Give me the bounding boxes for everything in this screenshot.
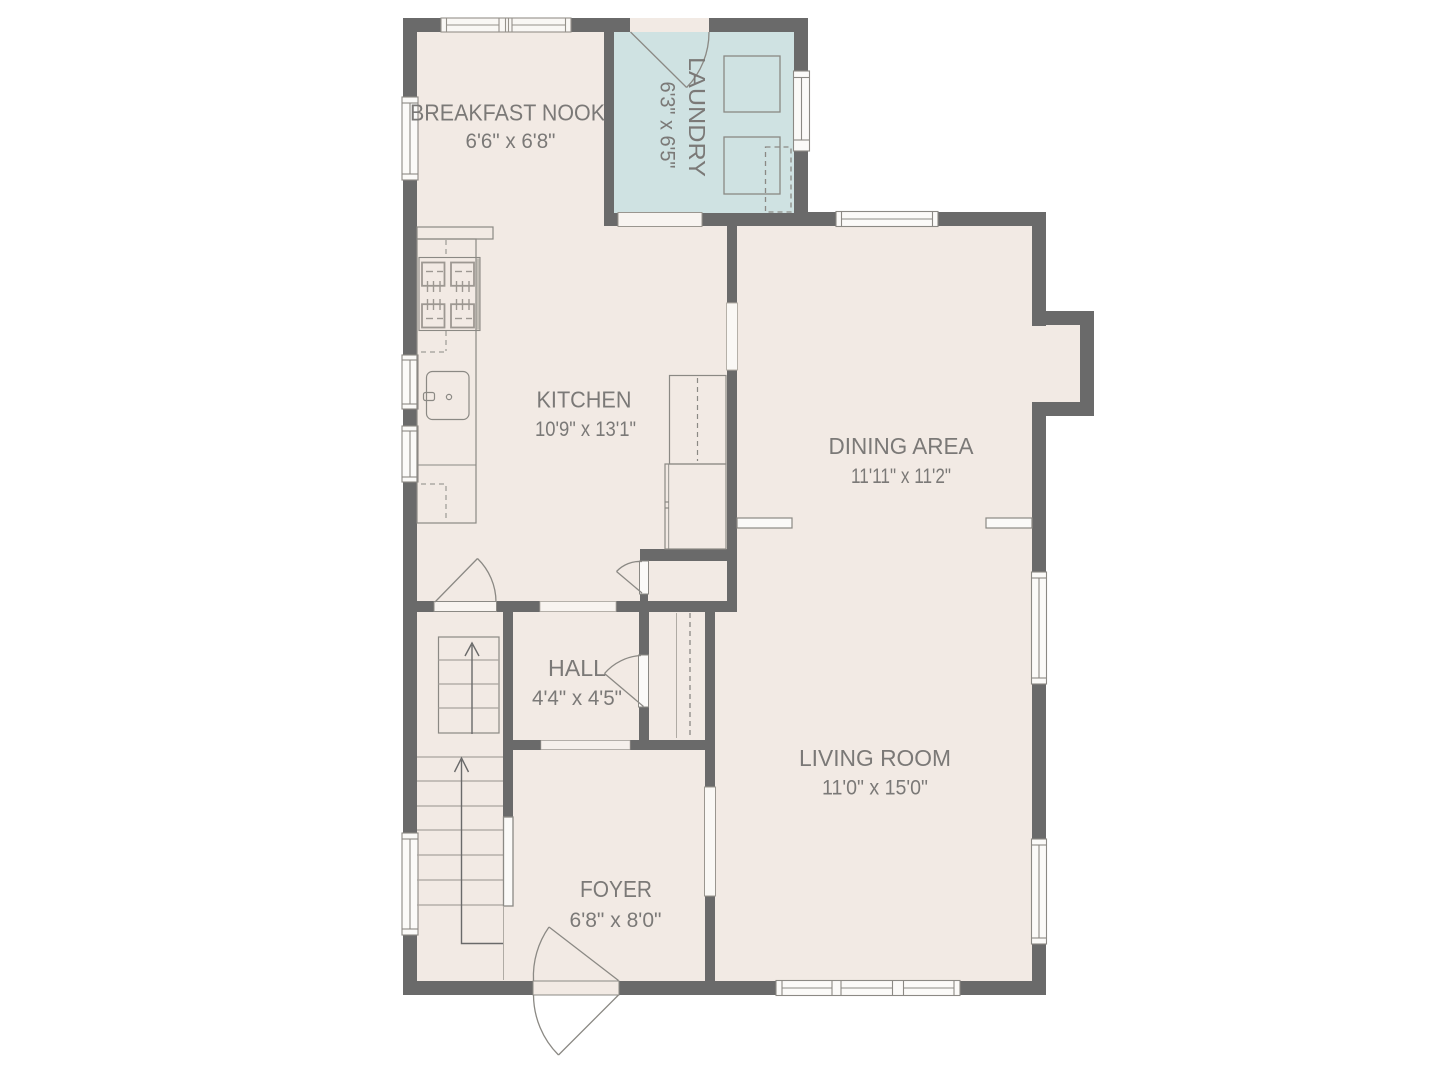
svg-text:DINING AREA: DINING AREA (829, 433, 975, 459)
svg-text:6'3" x 6'5": 6'3" x 6'5" (656, 82, 679, 169)
svg-text:6'8" x 8'0": 6'8" x 8'0" (570, 909, 662, 932)
svg-text:11'11" x 11'2": 11'11" x 11'2" (851, 465, 951, 488)
svg-text:HALL: HALL (548, 655, 606, 681)
svg-text:10'9" x 13'1": 10'9" x 13'1" (535, 418, 636, 441)
svg-text:FOYER: FOYER (580, 876, 652, 902)
svg-text:KITCHEN: KITCHEN (537, 387, 632, 413)
svg-text:LIVING ROOM: LIVING ROOM (799, 745, 951, 771)
svg-text:4'4" x 4'5": 4'4" x 4'5" (532, 687, 622, 710)
svg-text:LAUNDRY: LAUNDRY (684, 57, 710, 177)
svg-text:11'0" x 15'0": 11'0" x 15'0" (822, 777, 928, 800)
svg-text:BREAKFAST NOOK: BREAKFAST NOOK (410, 100, 606, 126)
svg-text:6'6" x 6'8": 6'6" x 6'8" (466, 130, 556, 153)
